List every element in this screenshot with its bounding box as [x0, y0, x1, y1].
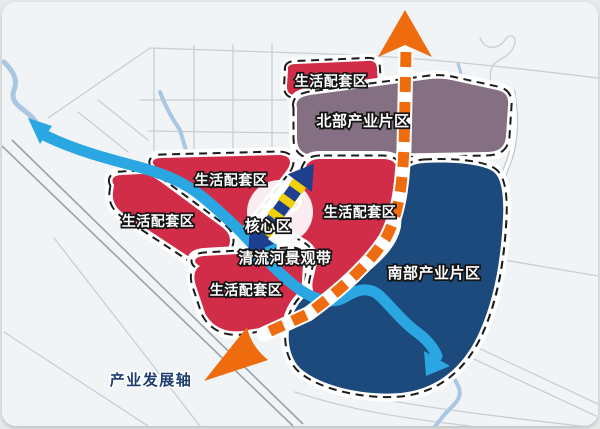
- label-north-industrial: 北部产业片区: [316, 112, 409, 130]
- label-north-strip: 生活配套区: [295, 73, 368, 90]
- planning-map-screenshot: 生活配套区 北部产业片区 生活配套区 生活配套区 生活配套区 核心区 清流河景观…: [0, 0, 600, 429]
- label-living-upper: 生活配套区: [195, 172, 268, 189]
- label-development-axis: 产业发展轴: [110, 371, 193, 389]
- map-panel: 生活配套区 北部产业片区 生活配套区 生活配套区 生活配套区 核心区 清流河景观…: [2, 2, 598, 426]
- label-living-right: 生活配套区: [324, 204, 397, 221]
- planning-map: 生活配套区 北部产业片区 生活配套区 生活配套区 生活配套区 核心区 清流河景观…: [2, 2, 598, 426]
- label-core-area: 核心区: [245, 217, 292, 235]
- label-living-bottom: 生活配套区: [210, 282, 283, 299]
- label-river-belt: 清流河景观带: [238, 249, 331, 267]
- label-living-left: 生活配套区: [122, 213, 195, 230]
- label-south-industrial: 南部产业片区: [387, 264, 480, 282]
